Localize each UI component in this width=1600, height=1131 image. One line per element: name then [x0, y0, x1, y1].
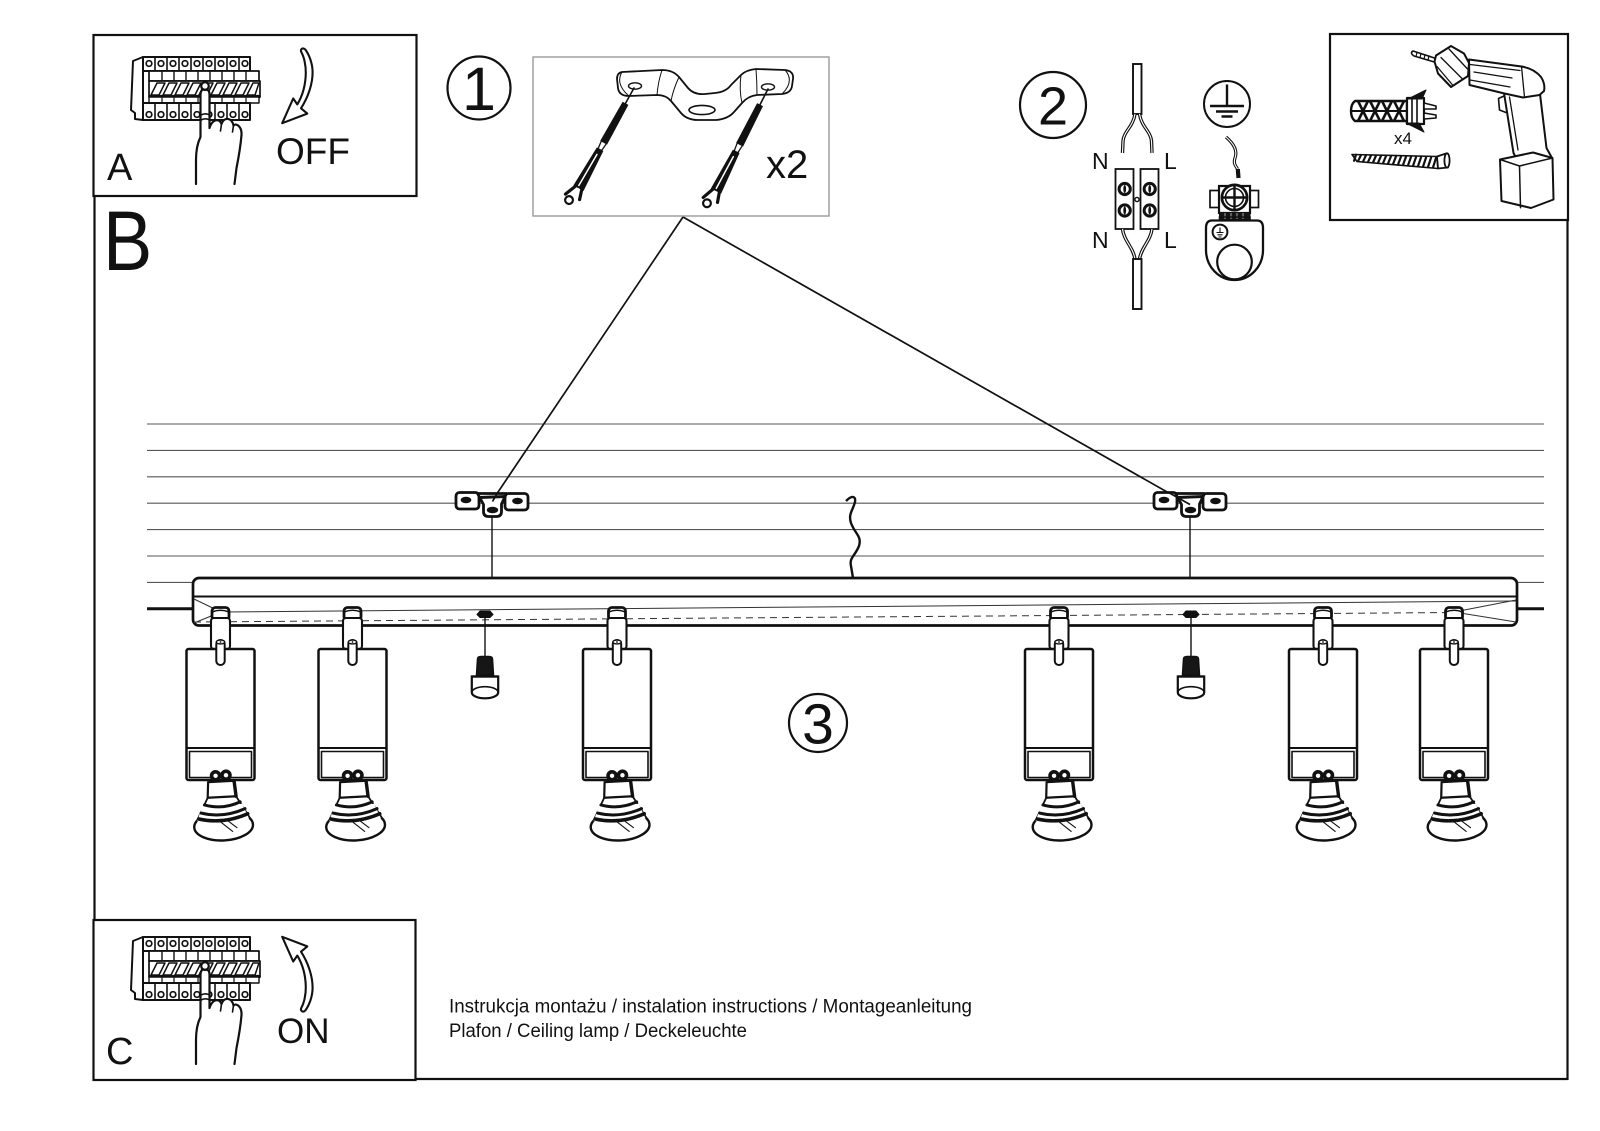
svg-text:Instrukcja montażu / instalati: Instrukcja montażu / instalation instruc…	[449, 997, 972, 1018]
svg-text:x2: x2	[766, 143, 808, 187]
svg-text:3: 3	[802, 693, 834, 757]
svg-text:L: L	[1164, 148, 1177, 174]
svg-text:A: A	[107, 147, 133, 189]
svg-text:Plafon / Ceiling lamp / Deckel: Plafon / Ceiling lamp / Deckeleuchte	[449, 1021, 747, 1042]
svg-text:2: 2	[1038, 77, 1068, 137]
svg-text:x4: x4	[1394, 129, 1412, 148]
svg-text:N: N	[1092, 227, 1109, 253]
svg-text:1: 1	[462, 55, 496, 123]
svg-text:ON: ON	[277, 1012, 330, 1051]
svg-text:L: L	[1164, 227, 1177, 253]
svg-text:C: C	[106, 1031, 133, 1073]
svg-text:N: N	[1092, 148, 1109, 174]
svg-text:B: B	[103, 194, 152, 288]
svg-text:OFF: OFF	[276, 131, 350, 172]
